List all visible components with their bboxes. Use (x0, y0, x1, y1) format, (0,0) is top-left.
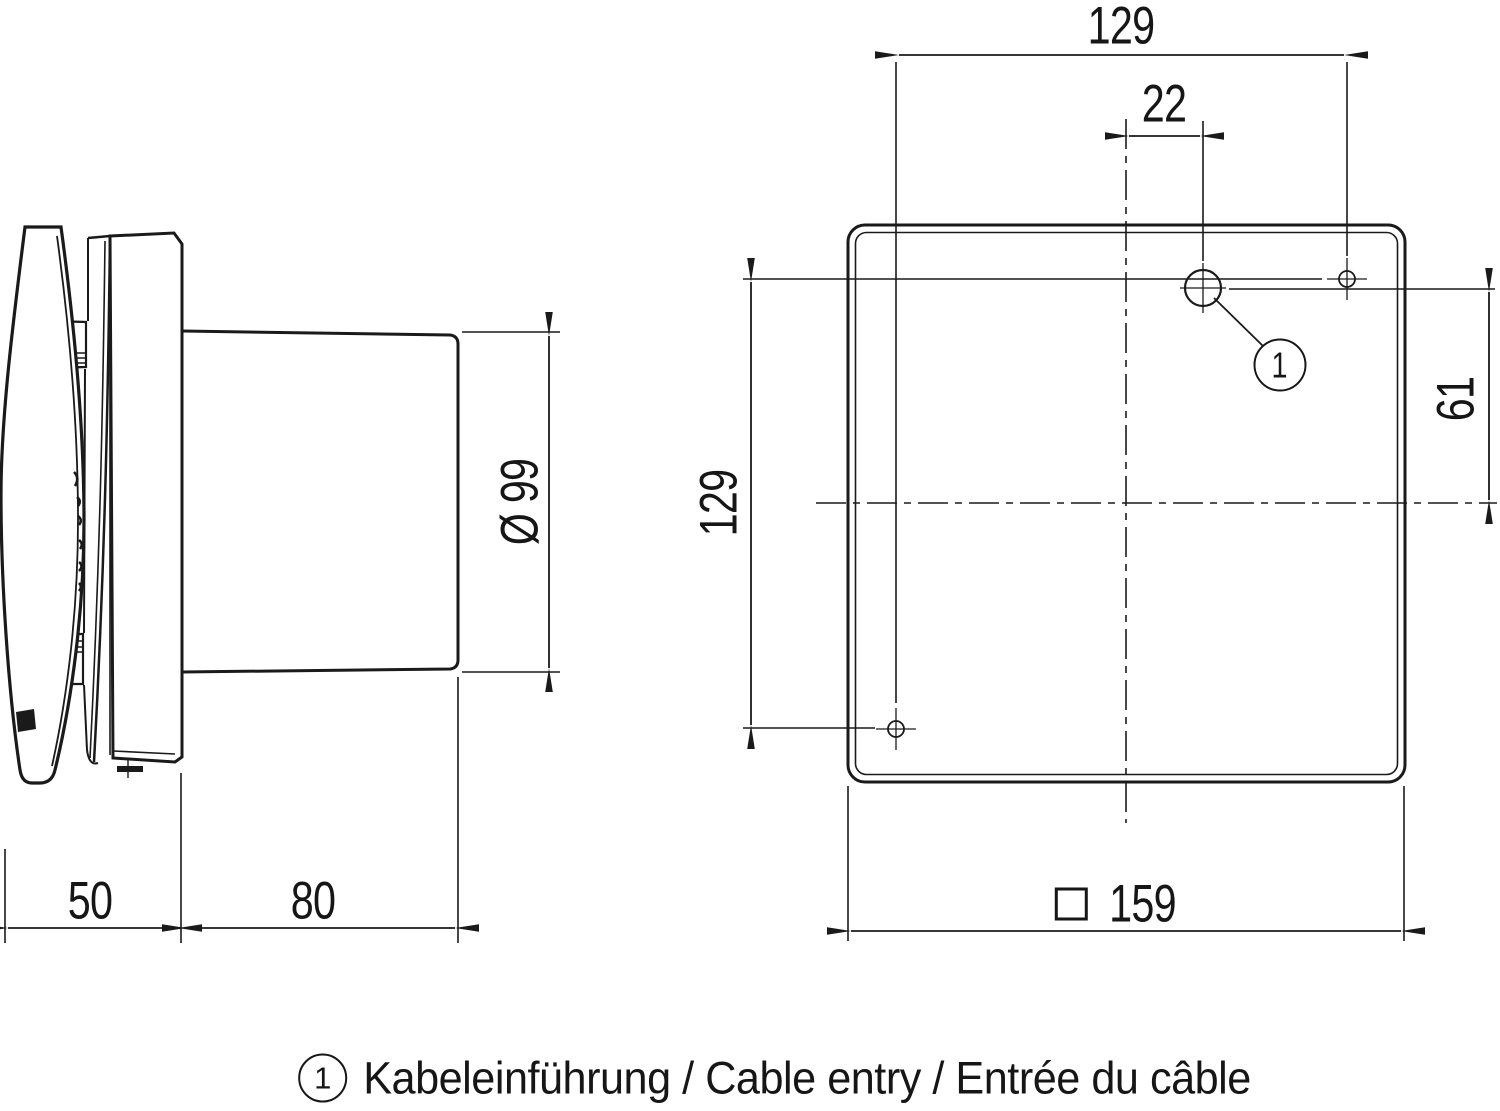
caption: 1 Kabeleinführung / Cable entry / Entrée… (298, 1054, 1288, 1103)
drawing-linework (0, 0, 1500, 1111)
mounting-plate-edge (94, 236, 110, 762)
panel-size-value: 159 (1109, 878, 1176, 931)
caption-text: Kabeleinführung / Cable entry / Entrée d… (363, 1056, 1251, 1101)
dim-label-cable-height: 61 (1430, 377, 1483, 421)
callout-1-number: 1 (1272, 347, 1288, 383)
dim-label-duct-length: 80 (291, 875, 335, 928)
side-view-dimensions (5, 332, 560, 943)
front-cover-outline (1, 227, 84, 783)
cable-entry-hole (1180, 263, 1226, 313)
fan-body-outline (110, 233, 182, 762)
cover-switch-notch (16, 709, 36, 732)
square-dimension-symbol (1055, 888, 1088, 921)
side-view-drawing (1, 227, 458, 783)
dim-label-cable-offset: 22 (1142, 78, 1186, 131)
dim-label-front-depth: 50 (68, 875, 112, 928)
duct-tube-outline (182, 331, 458, 672)
dim-label-duct-diameter: Ø 99 (494, 459, 547, 546)
caption-marker-number: 1 (314, 1063, 331, 1094)
dim-label-panel-size: 159 (1055, 878, 1185, 931)
body-foot-mark (117, 766, 143, 772)
dim-label-hole-spacing-h: 129 (1088, 0, 1155, 53)
technical-drawing: 50 80 Ø 99 129 22 129 61 159 1 1 Kabelei… (0, 0, 1500, 1111)
callout-1-badge: 1 (1254, 339, 1307, 392)
callout-leader-line (1214, 298, 1263, 346)
mounting-hole-top-right (1327, 258, 1367, 300)
dim-label-hole-spacing-v: 129 (693, 470, 746, 537)
mounting-hole-bottom-left (876, 708, 916, 750)
front-view-drawing (743, 119, 1497, 823)
caption-marker-icon: 1 (298, 1054, 347, 1103)
front-view-dimensions (751, 55, 1489, 941)
